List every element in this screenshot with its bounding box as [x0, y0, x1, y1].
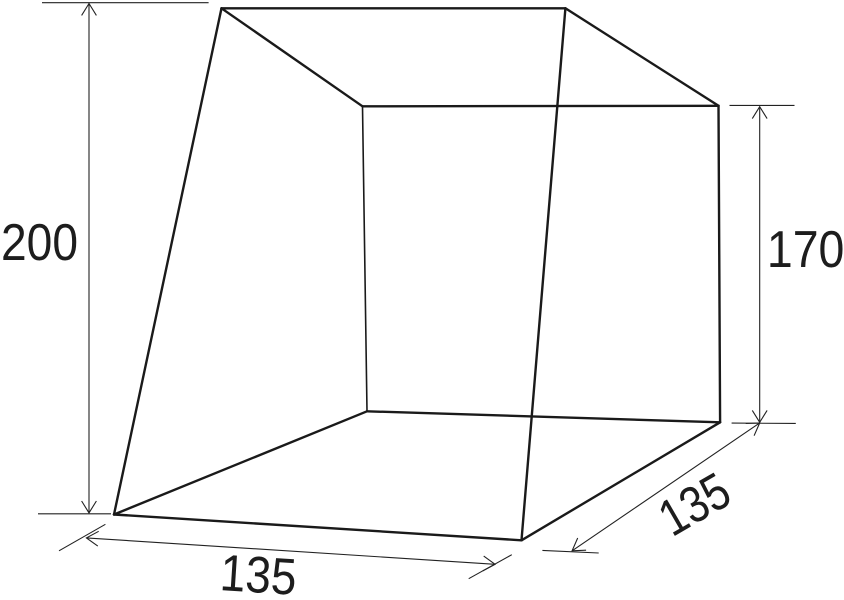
svg-text:200: 200	[1, 213, 78, 271]
svg-text:135: 135	[218, 543, 298, 600]
svg-text:135: 135	[649, 461, 740, 547]
svg-text:170: 170	[767, 220, 844, 278]
